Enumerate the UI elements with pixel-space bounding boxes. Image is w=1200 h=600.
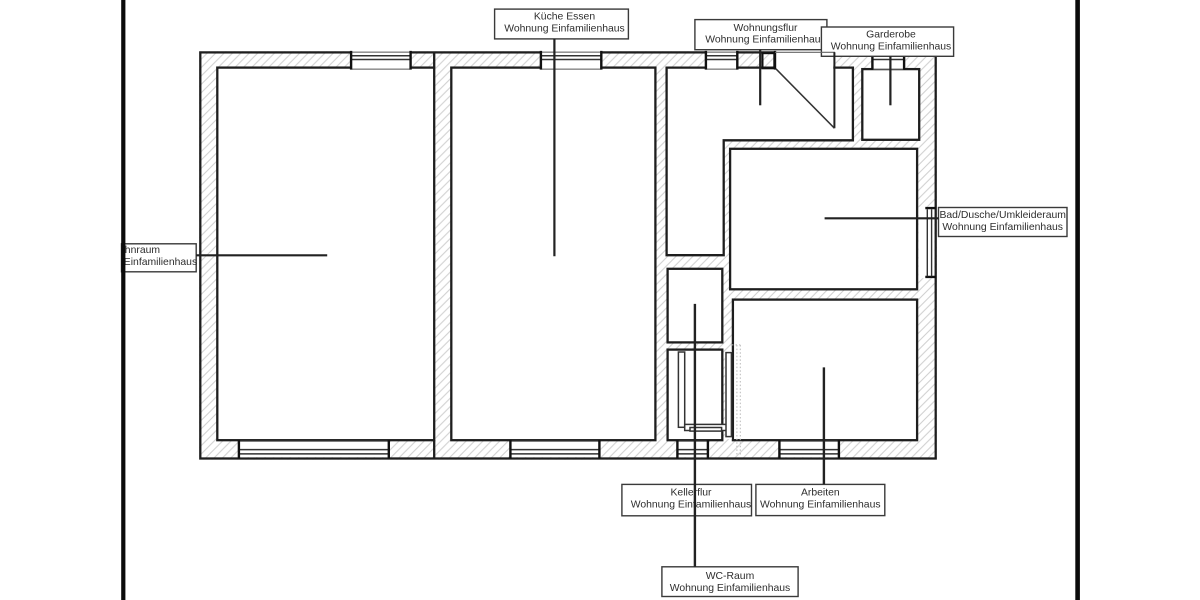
svg-text:Arbeiten: Arbeiten [801,487,840,498]
svg-text:Wohnung Einfamilienhaus: Wohnung Einfamilienhaus [831,41,952,52]
svg-text:Wohnung Einfamilienhaus: Wohnung Einfamilienhaus [705,34,826,45]
svg-text:Wohnung Einfamilienhaus: Wohnung Einfamilienhaus [504,23,625,34]
svg-text:Bad/Dusche/Umkleideraum: Bad/Dusche/Umkleideraum [939,210,1065,221]
svg-text:hnraum: hnraum [125,245,160,256]
svg-text:Kellerflur: Kellerflur [671,487,713,498]
svg-text:Küche Essen: Küche Essen [534,11,595,22]
svg-text:Wohnung Einfamilienhaus: Wohnung Einfamilienhaus [670,583,791,594]
svg-text:Wohnung Einfamilienhaus: Wohnung Einfamilienhaus [760,499,881,510]
svg-text:Garderobe: Garderobe [866,29,916,40]
svg-text:Einfamilienhaus: Einfamilienhaus [124,257,197,268]
svg-text:Wohnung Einfamilienhaus: Wohnung Einfamilienhaus [942,222,1063,233]
svg-text:Wohnungsflur: Wohnungsflur [734,23,798,34]
svg-text:Wohnung Einfamilienhaus: Wohnung Einfamilienhaus [631,499,752,510]
svg-text:WC-Raum: WC-Raum [706,571,755,582]
